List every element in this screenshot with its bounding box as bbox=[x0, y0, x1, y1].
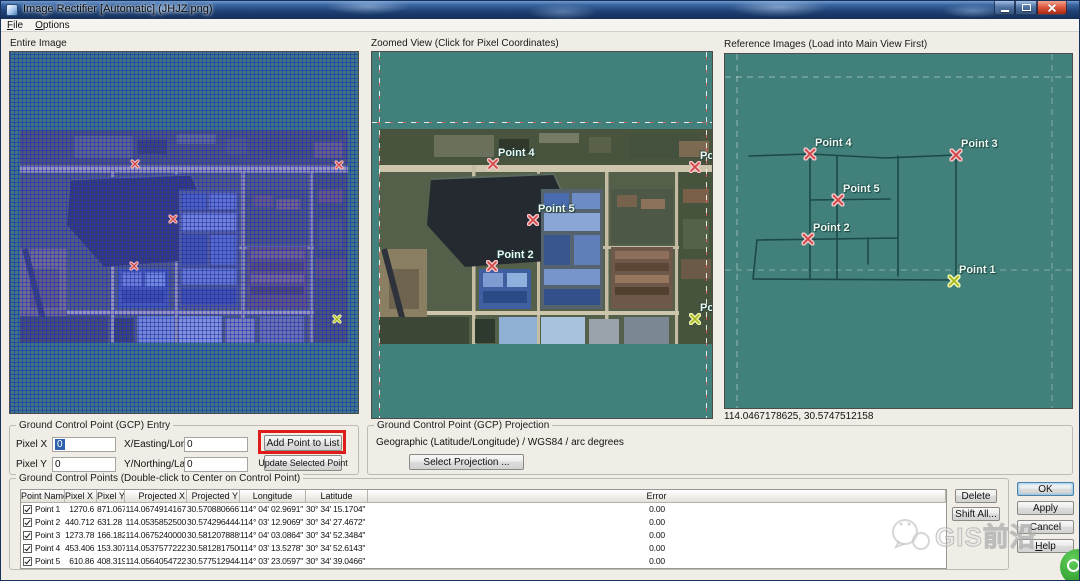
check-icon bbox=[24, 558, 30, 565]
phone-icon bbox=[1067, 559, 1080, 572]
table-cell: 610.86 bbox=[65, 555, 97, 568]
easting-label: X/Easting/Lon bbox=[124, 439, 186, 450]
gcp-marker-x-icon bbox=[335, 161, 344, 170]
reference-images-panel[interactable]: Point 4Point 3Point 5Point 2Point 1 bbox=[724, 53, 1073, 409]
minimize-button[interactable] bbox=[994, 1, 1015, 15]
menu-options[interactable]: Options bbox=[29, 20, 75, 31]
reference-roads bbox=[749, 154, 956, 281]
lon-gridline bbox=[379, 52, 380, 419]
column-header[interactable]: Pixel Y bbox=[97, 490, 125, 503]
table-row[interactable]: Point 4453.406153.307114.053757722230.58… bbox=[21, 542, 946, 555]
entire-image-panel[interactable] bbox=[9, 51, 359, 414]
northing-input[interactable]: 0 bbox=[184, 457, 248, 472]
table-cell: 114.0564054722 bbox=[125, 555, 187, 568]
menu-file[interactable]: File bbox=[1, 20, 29, 31]
table-row[interactable]: Point 2440.712631.28114.053585250030.574… bbox=[21, 516, 946, 529]
gcp-point-label: Point 2 bbox=[497, 249, 534, 261]
gcp-table-legend: Ground Control Points (Double-click to C… bbox=[16, 473, 303, 484]
table-cell: 0.00 bbox=[368, 555, 946, 568]
gcp-marker-x-icon bbox=[487, 158, 499, 170]
gcp-point-label: Point 3 bbox=[700, 150, 713, 162]
gcp-table[interactable]: Point NamePixel XPixel YProjected XProje… bbox=[20, 489, 947, 569]
row-checkbox[interactable] bbox=[23, 557, 32, 566]
app-icon bbox=[6, 4, 18, 16]
table-row[interactable]: Point 5610.86408.319114.056405472230.577… bbox=[21, 555, 946, 568]
pixel-y-input[interactable]: 0 bbox=[52, 457, 116, 472]
gcp-marker-x-icon bbox=[130, 262, 139, 271]
gcp-point-label: Point 5 bbox=[843, 183, 880, 195]
check-icon bbox=[24, 519, 30, 526]
help-button[interactable]: Help bbox=[1017, 539, 1074, 553]
close-button[interactable] bbox=[1037, 1, 1067, 15]
gcp-point-label: Point 3 bbox=[961, 138, 998, 150]
zoomed-view-panel[interactable]: Point 4Point 3Point 5Point 2Point 1 bbox=[371, 51, 713, 419]
title-bar[interactable]: Image Rectifier [Automatic] (JHJZ.png) bbox=[1, 1, 1080, 19]
table-cell: 30.5812817500 bbox=[187, 542, 240, 555]
rectification-grid-overlay bbox=[10, 52, 359, 414]
zoomed-view-caption: Zoomed View (Click for Pixel Coordinates… bbox=[371, 38, 559, 49]
update-selected-point-button[interactable]: Update Selected Point bbox=[264, 455, 342, 471]
projection-value: Geographic (Latitude/Longitude) / WGS84 … bbox=[376, 437, 624, 448]
table-cell: 1273.78 bbox=[65, 529, 97, 542]
check-icon bbox=[24, 532, 30, 539]
shift-all-button[interactable]: Shift All... bbox=[952, 507, 1000, 521]
table-row[interactable]: Point 11270.6871.067114.067491416730.570… bbox=[21, 503, 946, 516]
select-projection-button[interactable]: Select Projection ... bbox=[409, 454, 524, 470]
point-name: Point 2 bbox=[35, 516, 60, 529]
gcp-marker-x-icon bbox=[802, 233, 815, 246]
table-cell: 114° 03' 12.9069" E bbox=[240, 516, 306, 529]
gcp-table-header: Point NamePixel XPixel YProjected XProje… bbox=[21, 490, 946, 503]
table-cell: 166.182 bbox=[97, 529, 125, 542]
gcp-table-group: Ground Control Points (Double-click to C… bbox=[9, 478, 1009, 570]
lat-gridline bbox=[372, 122, 713, 123]
table-cell: 871.067 bbox=[97, 503, 125, 516]
table-cell: 114.0535852500 bbox=[125, 516, 187, 529]
cancel-button[interactable]: Cancel bbox=[1017, 520, 1074, 534]
column-header[interactable]: Pixel X bbox=[65, 490, 97, 503]
row-checkbox[interactable] bbox=[23, 518, 32, 527]
gcp-marker-x-icon bbox=[486, 260, 498, 272]
table-cell: 631.28 bbox=[97, 516, 125, 529]
gcp-point-label: Point 4 bbox=[815, 137, 852, 149]
gcp-point-label: Point 2 bbox=[813, 222, 850, 234]
table-cell: 30° 34' 52.3484" N bbox=[306, 529, 368, 542]
table-cell: 0.00 bbox=[368, 529, 946, 542]
close-icon bbox=[1047, 3, 1057, 13]
table-cell: 30.5812078889 bbox=[187, 529, 240, 542]
table-cell: 1270.6 bbox=[65, 503, 97, 516]
column-header[interactable]: Projected X bbox=[125, 490, 187, 503]
pixel-y-label: Pixel Y bbox=[16, 459, 47, 470]
gcp-projection-group: Ground Control Point (GCP) Projection Ge… bbox=[367, 425, 1073, 475]
point-name: Point 5 bbox=[35, 555, 60, 568]
minimize-icon bbox=[1001, 10, 1009, 12]
gcp-marker-x-icon bbox=[527, 214, 539, 226]
gcp-point-label: Point 1 bbox=[959, 264, 996, 276]
table-cell: 30° 34' 39.0466" N bbox=[306, 555, 368, 568]
table-cell: 114° 04' 02.9691" E bbox=[240, 503, 306, 516]
reference-images-caption: Reference Images (Load into Main View Fi… bbox=[724, 39, 927, 50]
gcp-marker-x-icon bbox=[950, 149, 963, 162]
point-name: Point 4 bbox=[35, 542, 60, 555]
table-cell: 30° 34' 15.1704" N bbox=[306, 503, 368, 516]
table-row[interactable]: Point 31273.78166.182114.067524000030.58… bbox=[21, 529, 946, 542]
gcp-marker-x-icon bbox=[333, 315, 342, 324]
gcp-marker-x-icon bbox=[804, 148, 817, 161]
table-cell: 114.0675240000 bbox=[125, 529, 187, 542]
table-cell: 0.00 bbox=[368, 542, 946, 555]
gcp-table-body: Point 11270.6871.067114.067491416730.570… bbox=[21, 503, 946, 568]
maximize-icon bbox=[1022, 4, 1031, 11]
apply-button[interactable]: Apply bbox=[1017, 501, 1074, 515]
entire-image-caption: Entire Image bbox=[10, 38, 67, 49]
column-header[interactable]: Longitude bbox=[240, 490, 306, 503]
gcp-entry-legend: Ground Control Point (GCP) Entry bbox=[16, 420, 173, 431]
red-highlight-annotation bbox=[258, 430, 346, 454]
zoomed-view-satellite bbox=[379, 129, 713, 344]
gcp-marker-x-icon bbox=[131, 160, 140, 169]
table-cell: 30.5708806667 bbox=[187, 503, 240, 516]
table-cell: 114° 03' 23.0597" E bbox=[240, 555, 306, 568]
gcp-marker-x-icon bbox=[832, 194, 845, 207]
check-icon bbox=[24, 506, 30, 513]
pixel-x-label: Pixel X bbox=[16, 439, 47, 450]
pixel-x-input[interactable]: 0 bbox=[52, 437, 116, 452]
cursor-coordinates: 114.0467178625, 30.5747512158 bbox=[724, 411, 873, 422]
ok-button[interactable]: OK bbox=[1017, 482, 1074, 496]
lon-gridline bbox=[706, 52, 707, 419]
gcp-projection-legend: Ground Control Point (GCP) Projection bbox=[374, 420, 552, 431]
table-cell: 153.307 bbox=[97, 542, 125, 555]
table-cell: 0.00 bbox=[368, 503, 946, 516]
column-header[interactable]: Latitude bbox=[306, 490, 368, 503]
column-header[interactable]: Error bbox=[368, 490, 946, 503]
gcp-point-label: Point 1 bbox=[700, 302, 713, 314]
easting-input[interactable]: 0 bbox=[184, 437, 248, 452]
table-cell: 440.712 bbox=[65, 516, 97, 529]
point-name: Point 1 bbox=[35, 503, 60, 516]
table-cell: 30.5775129444 bbox=[187, 555, 240, 568]
northing-label: Y/Northing/Lat bbox=[124, 459, 188, 470]
delete-button[interactable]: Delete bbox=[955, 489, 997, 503]
gcp-marker-x-icon bbox=[169, 215, 178, 224]
table-cell: 114° 04' 03.0864" E bbox=[240, 529, 306, 542]
table-cell: 453.406 bbox=[65, 542, 97, 555]
table-cell: 114.0674914167 bbox=[125, 503, 187, 516]
gcp-marker-x-icon bbox=[689, 161, 701, 173]
window-title: Image Rectifier [Automatic] (JHJZ.png) bbox=[23, 3, 213, 15]
table-cell: 408.319 bbox=[97, 555, 125, 568]
gcp-marker-x-icon bbox=[948, 275, 961, 288]
row-checkbox[interactable] bbox=[23, 544, 32, 553]
wechat-float-button[interactable] bbox=[1060, 549, 1080, 581]
table-cell: 0.00 bbox=[368, 516, 946, 529]
table-cell: 114.0537577222 bbox=[125, 542, 187, 555]
maximize-button[interactable] bbox=[1015, 1, 1037, 15]
column-header[interactable]: Projected Y bbox=[187, 490, 240, 503]
table-cell: 30° 34' 52.6143" N bbox=[306, 542, 368, 555]
table-cell: 114° 03' 13.5278" E bbox=[240, 542, 306, 555]
point-name: Point 3 bbox=[35, 529, 60, 542]
gcp-marker-x-icon bbox=[689, 313, 701, 325]
table-cell: 30° 34' 27.4672" N bbox=[306, 516, 368, 529]
column-header[interactable]: Point Name bbox=[21, 490, 65, 503]
reference-vector-map bbox=[725, 54, 1073, 409]
row-checkbox[interactable] bbox=[23, 505, 32, 514]
row-checkbox[interactable] bbox=[23, 531, 32, 540]
table-cell: 30.5742964444 bbox=[187, 516, 240, 529]
gcp-point-label: Point 4 bbox=[498, 147, 535, 159]
image-rectifier-window: Image Rectifier [Automatic] (JHJZ.png) F… bbox=[0, 0, 1080, 581]
menu-bar: File Options bbox=[1, 19, 1080, 32]
check-icon bbox=[24, 545, 30, 552]
gcp-point-label: Point 5 bbox=[538, 203, 575, 215]
